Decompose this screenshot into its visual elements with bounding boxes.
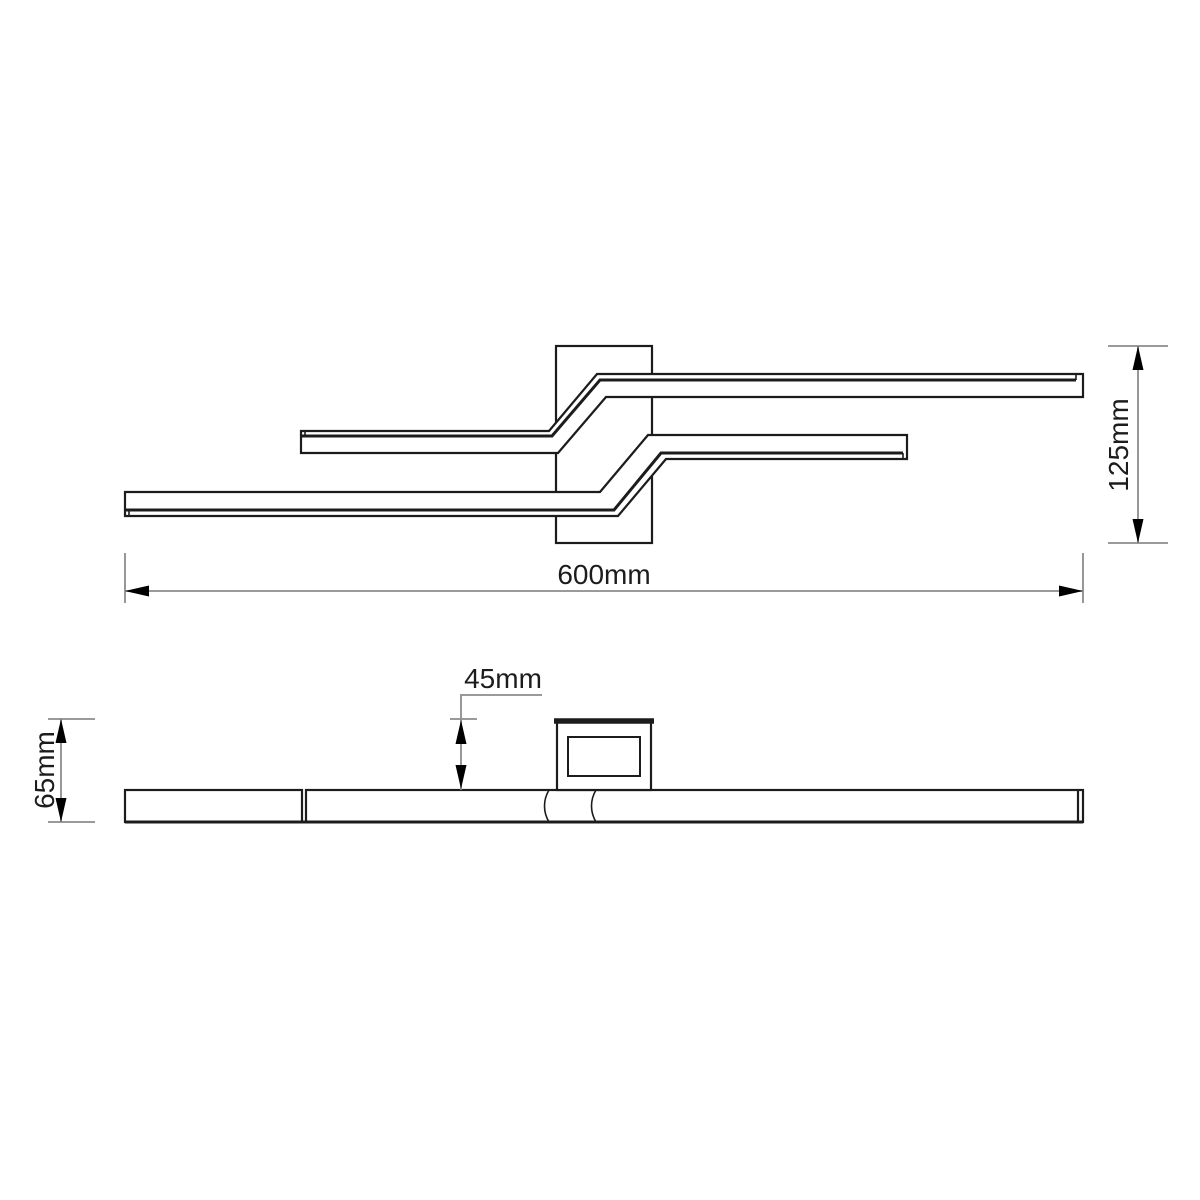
height-arrow-bottom-icon (1133, 519, 1144, 543)
offset-dimension: 45mm (450, 663, 542, 790)
profile-bar-right-segment (306, 790, 1083, 822)
width-dimension-label: 600mm (557, 559, 650, 590)
profile-bar-left-segment (125, 790, 302, 822)
offset-dimension-label: 45mm (464, 663, 542, 694)
height-dimension-label: 125mm (1103, 398, 1134, 491)
width-dimension: 600mm (125, 553, 1083, 603)
offset-leader-line (461, 695, 542, 790)
light-fixture-dimension-drawing: 600mm 125mm 45mm 65mm (0, 0, 1200, 1200)
depth-dimension-label: 65mm (29, 731, 60, 809)
width-arrow-left-icon (125, 586, 149, 597)
depth-dimension: 65mm (29, 719, 95, 822)
offset-arrow-down-icon (456, 765, 467, 789)
technical-drawing-page: 600mm 125mm 45mm 65mm (0, 0, 1200, 1200)
height-arrow-top-icon (1133, 346, 1144, 370)
offset-arrow-up-icon (456, 720, 467, 744)
side-view (125, 721, 1083, 822)
mounting-box (557, 721, 651, 790)
width-arrow-right-icon (1059, 586, 1083, 597)
height-dimension: 125mm (1103, 346, 1168, 543)
front-view (125, 346, 1083, 543)
